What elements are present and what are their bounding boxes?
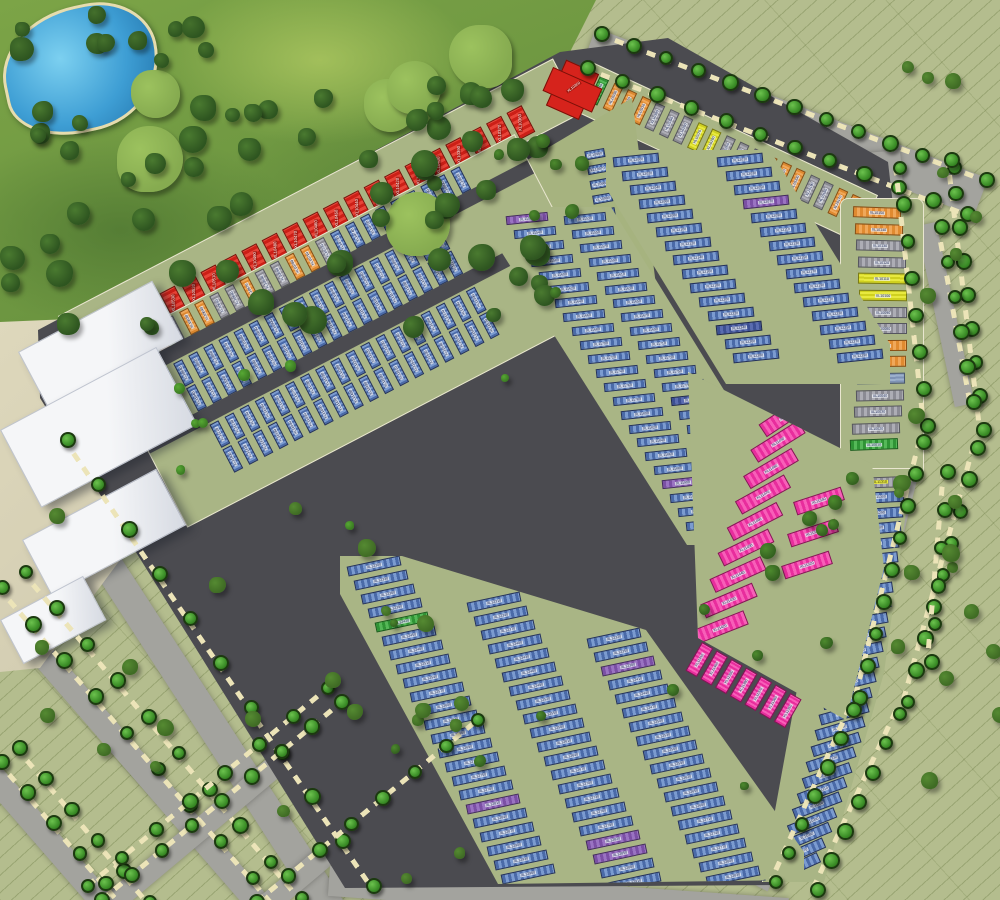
tree-icon	[122, 659, 138, 675]
plot-XL11480[interactable]: XL11480	[343, 382, 364, 410]
street-tree-icon	[865, 765, 881, 781]
tree-icon	[939, 671, 954, 686]
plot-label: XL12000	[628, 157, 645, 162]
plot-XL10020[interactable]: XL10020	[852, 422, 900, 435]
plot-XL12000[interactable]: XL12000	[613, 153, 660, 167]
street-tree-icon	[924, 654, 940, 670]
street-tree-icon	[615, 74, 630, 89]
street-tree-icon	[12, 740, 27, 755]
plot-label: XL11630	[618, 285, 634, 290]
tree-icon	[230, 192, 253, 215]
plot-XL11590[interactable]: XL11590	[588, 254, 631, 267]
plot-label: XL12020	[636, 171, 653, 176]
tree-icon	[121, 172, 136, 187]
plot-label: XL11820	[642, 424, 658, 429]
plot-XL11690[interactable]: XL11690	[629, 323, 672, 336]
street-tree-icon	[684, 100, 700, 116]
plot-label: XL10970	[589, 166, 606, 172]
plot-XL11380[interactable]: XL11380	[451, 295, 472, 323]
tree-icon	[462, 131, 483, 152]
tree-icon	[417, 615, 434, 632]
plot-label: XL10150	[869, 210, 885, 214]
tree-icon	[427, 102, 444, 119]
plot-label: XL11660	[576, 313, 592, 318]
plot-label: XL11900	[675, 480, 691, 485]
plot-XL11390[interactable]: XL11390	[466, 287, 487, 315]
tree-icon	[198, 42, 214, 58]
tree-icon	[277, 805, 289, 817]
plot-XL10940[interactable]: XL10940	[324, 281, 345, 309]
plot-XL10110[interactable]: XL10110	[858, 273, 906, 285]
plot-label: XL10300	[650, 109, 660, 125]
plot-label: XL10960	[587, 151, 604, 157]
plot-label: XL10950	[344, 279, 355, 295]
plot-XL10950[interactable]: XL10950	[339, 273, 360, 301]
tree-icon	[920, 288, 936, 304]
plot-XL11700[interactable]: XL11700	[579, 337, 622, 350]
plot-XL12030[interactable]: XL12030	[725, 167, 772, 181]
plot-XL11730[interactable]: XL11730	[646, 351, 689, 364]
plot-XL12070[interactable]: XL12070	[742, 195, 789, 209]
plot-XL12180[interactable]: XL12180	[690, 279, 737, 293]
plot-label: XL12590	[669, 760, 686, 767]
plot-XL11260[interactable]: XL11260	[270, 389, 291, 417]
tree-icon	[501, 79, 524, 102]
plot-XL11650[interactable]: XL11650	[613, 295, 656, 308]
plot-XL11860[interactable]: XL11860	[645, 448, 688, 461]
plot-XL11510[interactable]: XL11510	[388, 359, 409, 387]
tree-icon	[948, 495, 962, 509]
tree-icon	[57, 313, 80, 336]
plot-XL11550[interactable]: XL11550	[449, 327, 470, 355]
plot-label: XL11170	[387, 288, 397, 304]
tree-icon	[449, 25, 512, 88]
plot-label: XL11610	[610, 271, 626, 276]
plot-label: XL12150	[792, 255, 809, 260]
plot-label: XL11040	[191, 390, 202, 406]
tree-icon	[381, 606, 391, 616]
plot-XL11530[interactable]: XL11530	[418, 343, 439, 371]
street-tree-icon	[295, 891, 309, 900]
plot-label: XL10730	[335, 235, 346, 251]
plot-XL11550[interactable]: XL11550	[572, 226, 615, 239]
plot-label: XL11380	[738, 677, 749, 693]
tree-icon	[131, 70, 180, 119]
plot-label: XL11370	[753, 686, 764, 702]
plot-label: XL11410	[694, 652, 705, 668]
tree-icon	[428, 248, 451, 271]
plot-XL12110[interactable]: XL12110	[760, 223, 807, 237]
street-tree-icon	[908, 308, 923, 323]
tree-icon	[359, 150, 377, 168]
street-tree-icon	[908, 662, 925, 679]
plot-XL12060[interactable]: XL12060	[638, 195, 685, 209]
tree-icon	[947, 562, 959, 574]
tree-icon	[891, 639, 906, 654]
tree-icon	[945, 73, 961, 89]
plot-label: XL11280	[305, 379, 316, 395]
plot-XL12280[interactable]: XL12280	[733, 349, 780, 363]
plot-XL11630[interactable]: XL11630	[605, 281, 648, 294]
plot-XL11720[interactable]: XL11720	[588, 351, 631, 364]
plot-XL10010[interactable]: XL10010	[849, 438, 897, 451]
plot-XL11330[interactable]: XL11330	[375, 334, 396, 362]
plot-XL12010[interactable]: XL12010	[717, 153, 764, 167]
street-tree-icon	[916, 434, 932, 450]
plot-XL11300[interactable]: XL11300	[330, 357, 351, 385]
tree-icon	[986, 644, 1000, 659]
plot-XL10140[interactable]: XL10140	[855, 223, 903, 235]
plot-XL11220[interactable]: XL11220	[209, 420, 230, 448]
plot-XL11520[interactable]: XL11520	[403, 351, 424, 379]
street-tree-icon	[344, 817, 358, 831]
street-tree-icon	[856, 166, 873, 183]
plot-label: XL11240	[245, 410, 256, 426]
plot-label: XL12840	[492, 814, 509, 821]
street-tree-icon	[944, 152, 959, 167]
plot-label: XL10940	[329, 286, 340, 302]
plot-XL12200[interactable]: XL12200	[699, 293, 746, 307]
street-tree-icon	[56, 652, 73, 669]
plot-XL11370[interactable]: XL11370	[436, 302, 457, 330]
plot-XL12270[interactable]: XL12270	[828, 335, 875, 349]
plot-label: XL11380	[456, 301, 467, 317]
plot-label: XL11440	[288, 420, 299, 436]
plot-label: XL12690	[457, 744, 474, 751]
plot-label: XL12350	[613, 648, 630, 655]
plot-label: XL10630	[184, 313, 195, 329]
plot-label: XL11670	[634, 313, 650, 318]
tree-icon	[49, 508, 65, 524]
plot-label: XL11840	[650, 438, 666, 443]
plot-XL11560[interactable]: XL11560	[464, 319, 485, 347]
plot-label: XL10980	[389, 255, 400, 271]
plot-XL12260[interactable]: XL12260	[724, 335, 771, 349]
plot-XL12050[interactable]: XL12050	[734, 181, 781, 195]
plot-label: XL12570	[429, 688, 446, 695]
plot-XL10970[interactable]: XL10970	[587, 163, 608, 175]
plot-XL10040[interactable]: XL10040	[856, 389, 904, 401]
tree-icon	[740, 782, 749, 791]
street-tree-icon	[754, 87, 770, 103]
plot-XL11420[interactable]: XL11420	[253, 429, 274, 457]
plot-XL11800[interactable]: XL11800	[620, 406, 663, 419]
plot-XL11570[interactable]: XL11570	[580, 240, 623, 253]
tree-icon	[67, 202, 90, 225]
plot-XL10880[interactable]: XL10880	[233, 328, 254, 356]
plot-XL12120[interactable]: XL12120	[664, 237, 711, 251]
plot-label: XL11450	[738, 542, 754, 552]
plot-XL11470[interactable]: XL11470	[328, 390, 349, 418]
plot-label: XL10840	[178, 365, 189, 381]
street-tree-icon	[246, 871, 260, 885]
plot-label: XL12640	[563, 752, 580, 759]
tree-icon	[169, 260, 196, 287]
plot-label: XL12830	[725, 872, 742, 879]
plot-XL11660[interactable]: XL11660	[563, 309, 606, 322]
tree-icon	[140, 317, 154, 331]
tree-icon	[132, 208, 155, 231]
plot-XL10120[interactable]: XL10120	[857, 256, 905, 268]
tree-icon	[450, 719, 463, 732]
plot-label: XL10980	[592, 181, 609, 187]
tree-icon	[198, 418, 208, 428]
plot-label: XL10710	[305, 251, 316, 267]
plot-label: XL11720	[601, 355, 617, 360]
plot-label: XL11430	[721, 596, 737, 606]
plot-XL11840[interactable]: XL11840	[637, 434, 680, 447]
street-tree-icon	[819, 112, 834, 127]
plot-label: XL11390	[723, 669, 734, 685]
plot-XL10100[interactable]: XL10100	[859, 290, 907, 301]
plot-label: XL11880	[666, 466, 682, 471]
plot-XL11640[interactable]: XL11640	[555, 295, 598, 308]
tree-icon	[1, 273, 20, 292]
plot-XL11320[interactable]: XL11320	[360, 342, 381, 370]
tree-icon	[168, 21, 184, 37]
plot-XL11250[interactable]: XL11250	[255, 397, 276, 425]
tree-icon	[60, 141, 79, 160]
tree-icon	[40, 708, 55, 723]
plot-label: XL12480	[408, 646, 425, 653]
plot-XL12220[interactable]: XL12220	[707, 307, 754, 321]
plot-label: XL12330	[373, 576, 390, 583]
tree-icon	[97, 743, 111, 757]
plot-label: XL12510	[415, 660, 432, 667]
street-tree-icon	[846, 702, 862, 718]
plot-label: XL11160	[372, 296, 382, 312]
plot-XL11880[interactable]: XL11880	[653, 462, 696, 475]
street-tree-icon	[786, 99, 802, 115]
plot-label: XL11760	[617, 383, 633, 388]
plot-label: XL12290	[852, 353, 869, 358]
plot-XL12080[interactable]: XL12080	[647, 209, 694, 223]
plot-XL12160[interactable]: XL12160	[681, 265, 728, 279]
plot-label: XL11510	[393, 365, 404, 381]
plot-XL11500[interactable]: XL11500	[373, 367, 394, 395]
plot-label: XL11530	[424, 349, 435, 365]
tree-icon	[937, 167, 949, 179]
plot-label: XL11470	[333, 396, 344, 412]
street-tree-icon	[691, 63, 706, 78]
street-tree-icon	[753, 127, 768, 142]
plot-XL12020[interactable]: XL12020	[621, 167, 668, 181]
plot-label: XL12450	[401, 632, 418, 639]
plot-label: XL10960	[359, 271, 370, 287]
plot-label: XL12180	[705, 283, 722, 288]
tree-icon	[667, 684, 679, 696]
plot-XL11410[interactable]: XL11410	[237, 437, 258, 465]
tree-icon	[816, 524, 827, 535]
tree-icon	[314, 89, 333, 108]
plot-label: XL12560	[662, 746, 679, 753]
plot-label: XL11620	[560, 285, 576, 290]
plot-XL11290[interactable]: XL11290	[315, 365, 336, 393]
street-tree-icon	[953, 324, 970, 341]
plot-label: XL12200	[714, 297, 731, 302]
plot-label: XL11420	[712, 622, 728, 631]
plot-XL10970[interactable]: XL10970	[369, 257, 390, 285]
plot-XL11680[interactable]: XL11680	[571, 323, 614, 336]
plot-label: XL12750	[471, 772, 488, 779]
tree-icon	[765, 565, 780, 580]
tree-icon	[470, 86, 492, 108]
plot-XL11520[interactable]: XL11520	[506, 212, 549, 225]
plot-XL11780[interactable]: XL11780	[612, 393, 655, 406]
plot-label: XL11440	[730, 569, 746, 579]
plot-XL11740[interactable]: XL11740	[596, 365, 639, 378]
plot-XL11310[interactable]: XL11310	[345, 350, 366, 378]
tree-icon	[902, 61, 914, 73]
street-tree-icon	[110, 672, 126, 688]
tree-icon	[942, 544, 959, 561]
street-tree-icon	[952, 219, 968, 235]
plot-XL12140[interactable]: XL12140	[673, 251, 720, 265]
plot-label: XL12050	[749, 185, 766, 190]
plot-XL12150[interactable]: XL12150	[777, 251, 824, 265]
street-tree-icon	[833, 731, 849, 747]
tree-icon	[964, 604, 979, 619]
plot-label: XL12600	[436, 702, 453, 709]
plot-label: XL12230	[826, 311, 843, 316]
plot-XL11540[interactable]: XL11540	[433, 335, 454, 363]
tree-icon	[565, 204, 579, 218]
plot-label: XL11400	[709, 660, 720, 676]
plot-XL12290[interactable]: XL12290	[837, 349, 884, 363]
plot-XL11460[interactable]: XL11460	[313, 398, 334, 426]
plot-XL12040[interactable]: XL12040	[630, 181, 677, 195]
street-tree-icon	[46, 815, 62, 831]
plot-XL11440[interactable]: XL11440	[283, 414, 304, 442]
plot-label: XL12370	[500, 626, 517, 633]
plot-label: XL11320	[799, 561, 815, 569]
tree-icon	[216, 260, 239, 283]
street-tree-icon	[940, 464, 956, 480]
tree-icon	[327, 254, 346, 273]
plot-XL11400[interactable]: XL11400	[222, 445, 243, 473]
plot-label: XL10880	[239, 334, 250, 350]
tree-icon	[244, 104, 262, 122]
plot-XL10890[interactable]: XL10890	[249, 320, 270, 348]
plot-label: XL12930	[513, 856, 530, 863]
street-tree-icon	[25, 616, 42, 633]
plot-XL10130[interactable]: XL10130	[856, 240, 904, 252]
plot-label: XL11460	[318, 404, 329, 420]
plot-XL11280[interactable]: XL11280	[300, 373, 321, 401]
tree-icon	[427, 116, 451, 140]
plot-XL11450[interactable]: XL11450	[298, 406, 319, 434]
plot-label: XL11730	[659, 355, 675, 360]
tree-icon	[427, 76, 446, 95]
tree-icon	[225, 108, 240, 123]
plot-label: XL12190	[809, 283, 826, 288]
tree-icon	[529, 210, 540, 221]
plot-label: XL12540	[422, 674, 439, 681]
plot-label: XL10020	[868, 426, 884, 430]
plot-XL11430[interactable]: XL11430	[700, 583, 757, 619]
plot-XL12240[interactable]: XL12240	[716, 321, 763, 335]
plot-XL12100[interactable]: XL12100	[656, 223, 703, 237]
street-tree-icon	[594, 26, 610, 42]
plot-XL11610[interactable]: XL11610	[596, 267, 639, 280]
plot-XL11270[interactable]: XL11270	[285, 381, 306, 409]
plot-XL11420[interactable]: XL11420	[691, 610, 749, 644]
plot-XL11230[interactable]: XL11230	[225, 412, 246, 440]
plot-label: XL11860	[658, 452, 674, 457]
street-tree-icon	[217, 765, 233, 781]
street-tree-icon	[149, 822, 163, 836]
plot-XL10960[interactable]: XL10960	[354, 265, 375, 293]
plot-label: XL12470	[641, 704, 658, 711]
plot-label: XL12400	[507, 640, 524, 647]
plot-label: XL11180	[402, 280, 412, 296]
plot-label: XL11100	[282, 343, 292, 359]
street-tree-icon	[182, 793, 199, 810]
plot-label: XL11230	[230, 418, 241, 434]
plot-XL12210[interactable]: XL12210	[803, 293, 850, 307]
plot-XL12230[interactable]: XL12230	[811, 307, 858, 321]
plot-XL11430[interactable]: XL11430	[268, 422, 289, 450]
plot-XL11760[interactable]: XL11760	[604, 379, 647, 392]
plot-XL10850[interactable]: XL10850	[188, 351, 209, 379]
plot-label: XL11260	[275, 395, 286, 411]
plot-XL11440[interactable]: XL11440	[709, 556, 766, 593]
plot-XL11240[interactable]: XL11240	[240, 405, 261, 433]
plot-label: XL11500	[378, 373, 389, 389]
tree-icon	[184, 157, 204, 177]
plot-label: XL12160	[697, 269, 714, 274]
plot-label: XL12380	[620, 662, 637, 669]
plot-label: XL12520	[535, 696, 552, 703]
plot-label: XL12490	[528, 682, 545, 689]
plot-label: XL11800	[634, 410, 650, 415]
street-tree-icon	[823, 852, 839, 868]
plot-XL12170[interactable]: XL12170	[785, 265, 832, 279]
tree-icon	[520, 235, 545, 260]
tree-icon	[238, 369, 250, 381]
plot-label: XL10890	[254, 326, 265, 342]
plot-label: XL12580	[549, 724, 566, 731]
plot-label: XL11570	[593, 244, 609, 249]
plot-XL11670[interactable]: XL11670	[621, 309, 664, 322]
plot-XL10860[interactable]: XL10860	[203, 343, 224, 371]
plot-label: XL11410	[243, 443, 254, 459]
plot-XL10030[interactable]: XL10030	[854, 406, 902, 418]
plot-XL11490[interactable]: XL11490	[358, 374, 379, 402]
plot-label: XL10120	[873, 260, 889, 264]
plot-label: XL12650	[683, 788, 700, 795]
tree-icon	[454, 847, 465, 858]
plot-XL12190[interactable]: XL12190	[794, 279, 841, 293]
plot-XL12130[interactable]: XL12130	[768, 237, 815, 251]
plot-XL10870[interactable]: XL10870	[218, 336, 239, 364]
plot-label: XL12820	[605, 836, 622, 843]
plot-XL11710[interactable]: XL11710	[637, 337, 680, 350]
tree-icon	[575, 156, 589, 170]
plot-label: XL10330	[608, 89, 618, 105]
tree-icon	[176, 465, 186, 475]
plot-label: XL12700	[577, 780, 594, 787]
tree-icon	[150, 761, 161, 772]
tree-icon	[174, 383, 185, 394]
plot-XL12250[interactable]: XL12250	[820, 321, 867, 335]
tree-icon	[190, 95, 216, 121]
plot-label: XL11480	[763, 462, 779, 473]
plot-XL11820[interactable]: XL11820	[629, 420, 672, 433]
plot-label: XL11290	[320, 371, 331, 387]
plot-XL12090[interactable]: XL12090	[751, 209, 798, 223]
plot-XL10150[interactable]: XL10150	[853, 206, 901, 219]
